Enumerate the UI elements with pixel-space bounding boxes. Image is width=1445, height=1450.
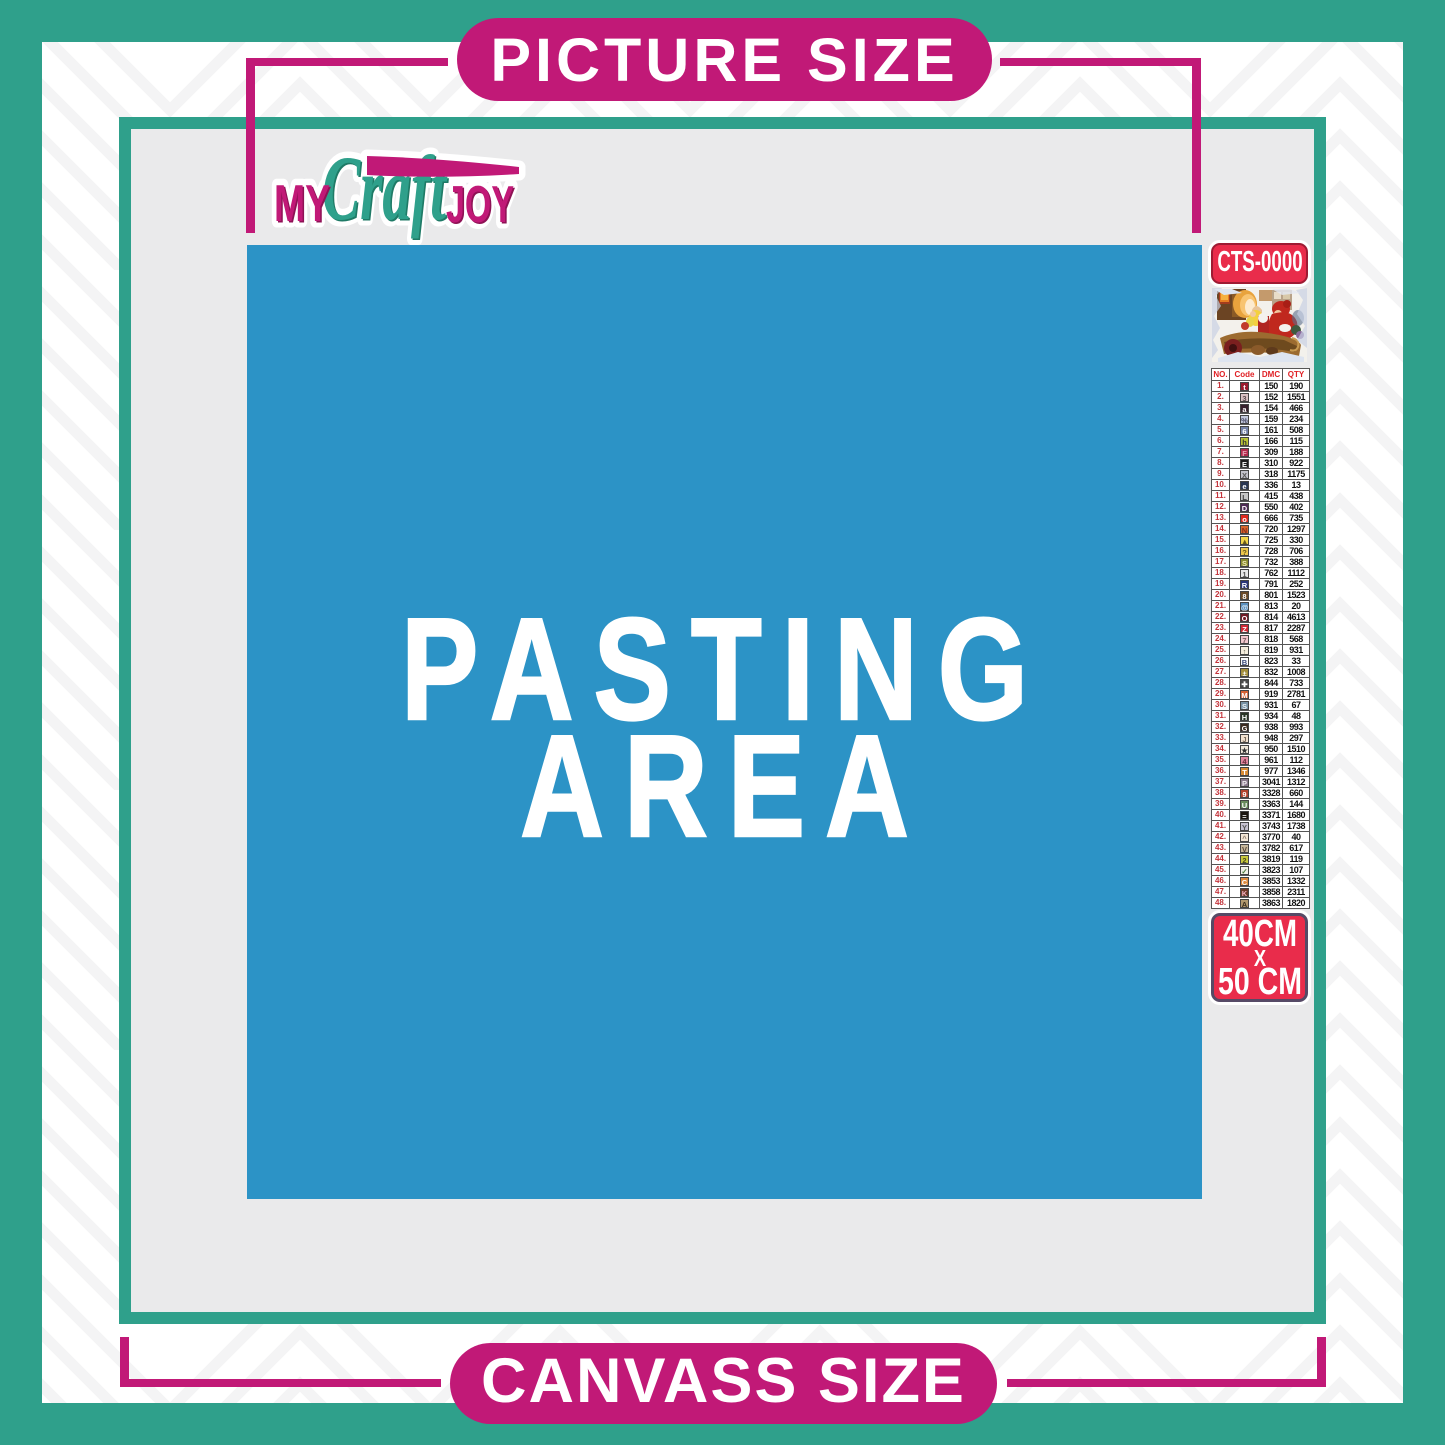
svg-text:JOY: JOY [446,176,514,234]
svg-text:Craft: Craft [322,137,448,239]
svg-text:MY: MY [274,175,330,233]
